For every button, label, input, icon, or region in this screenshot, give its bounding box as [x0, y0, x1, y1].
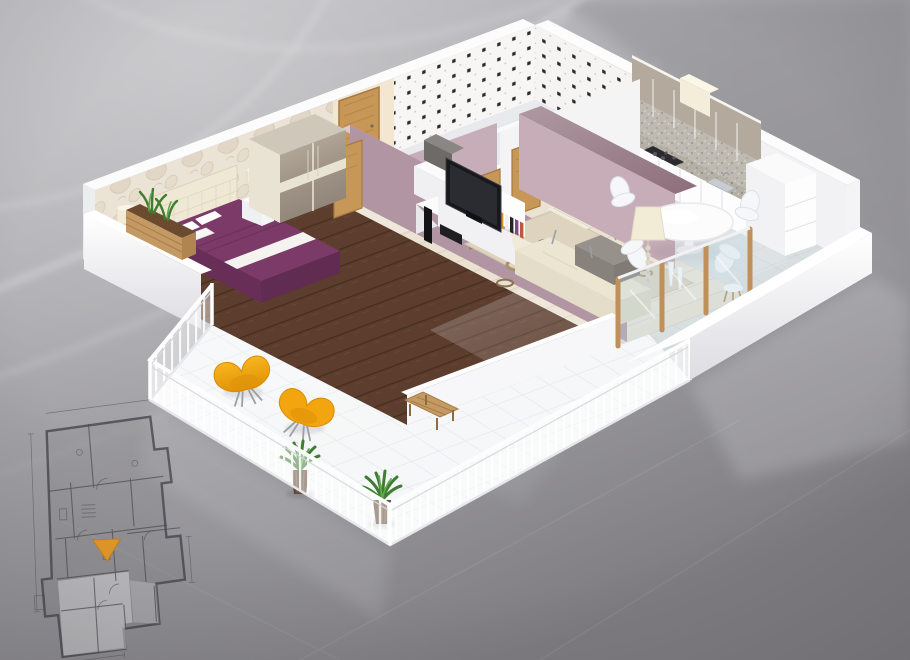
render-canvas: [0, 0, 910, 660]
vignette: [0, 0, 910, 660]
apartment-render: [0, 0, 910, 660]
